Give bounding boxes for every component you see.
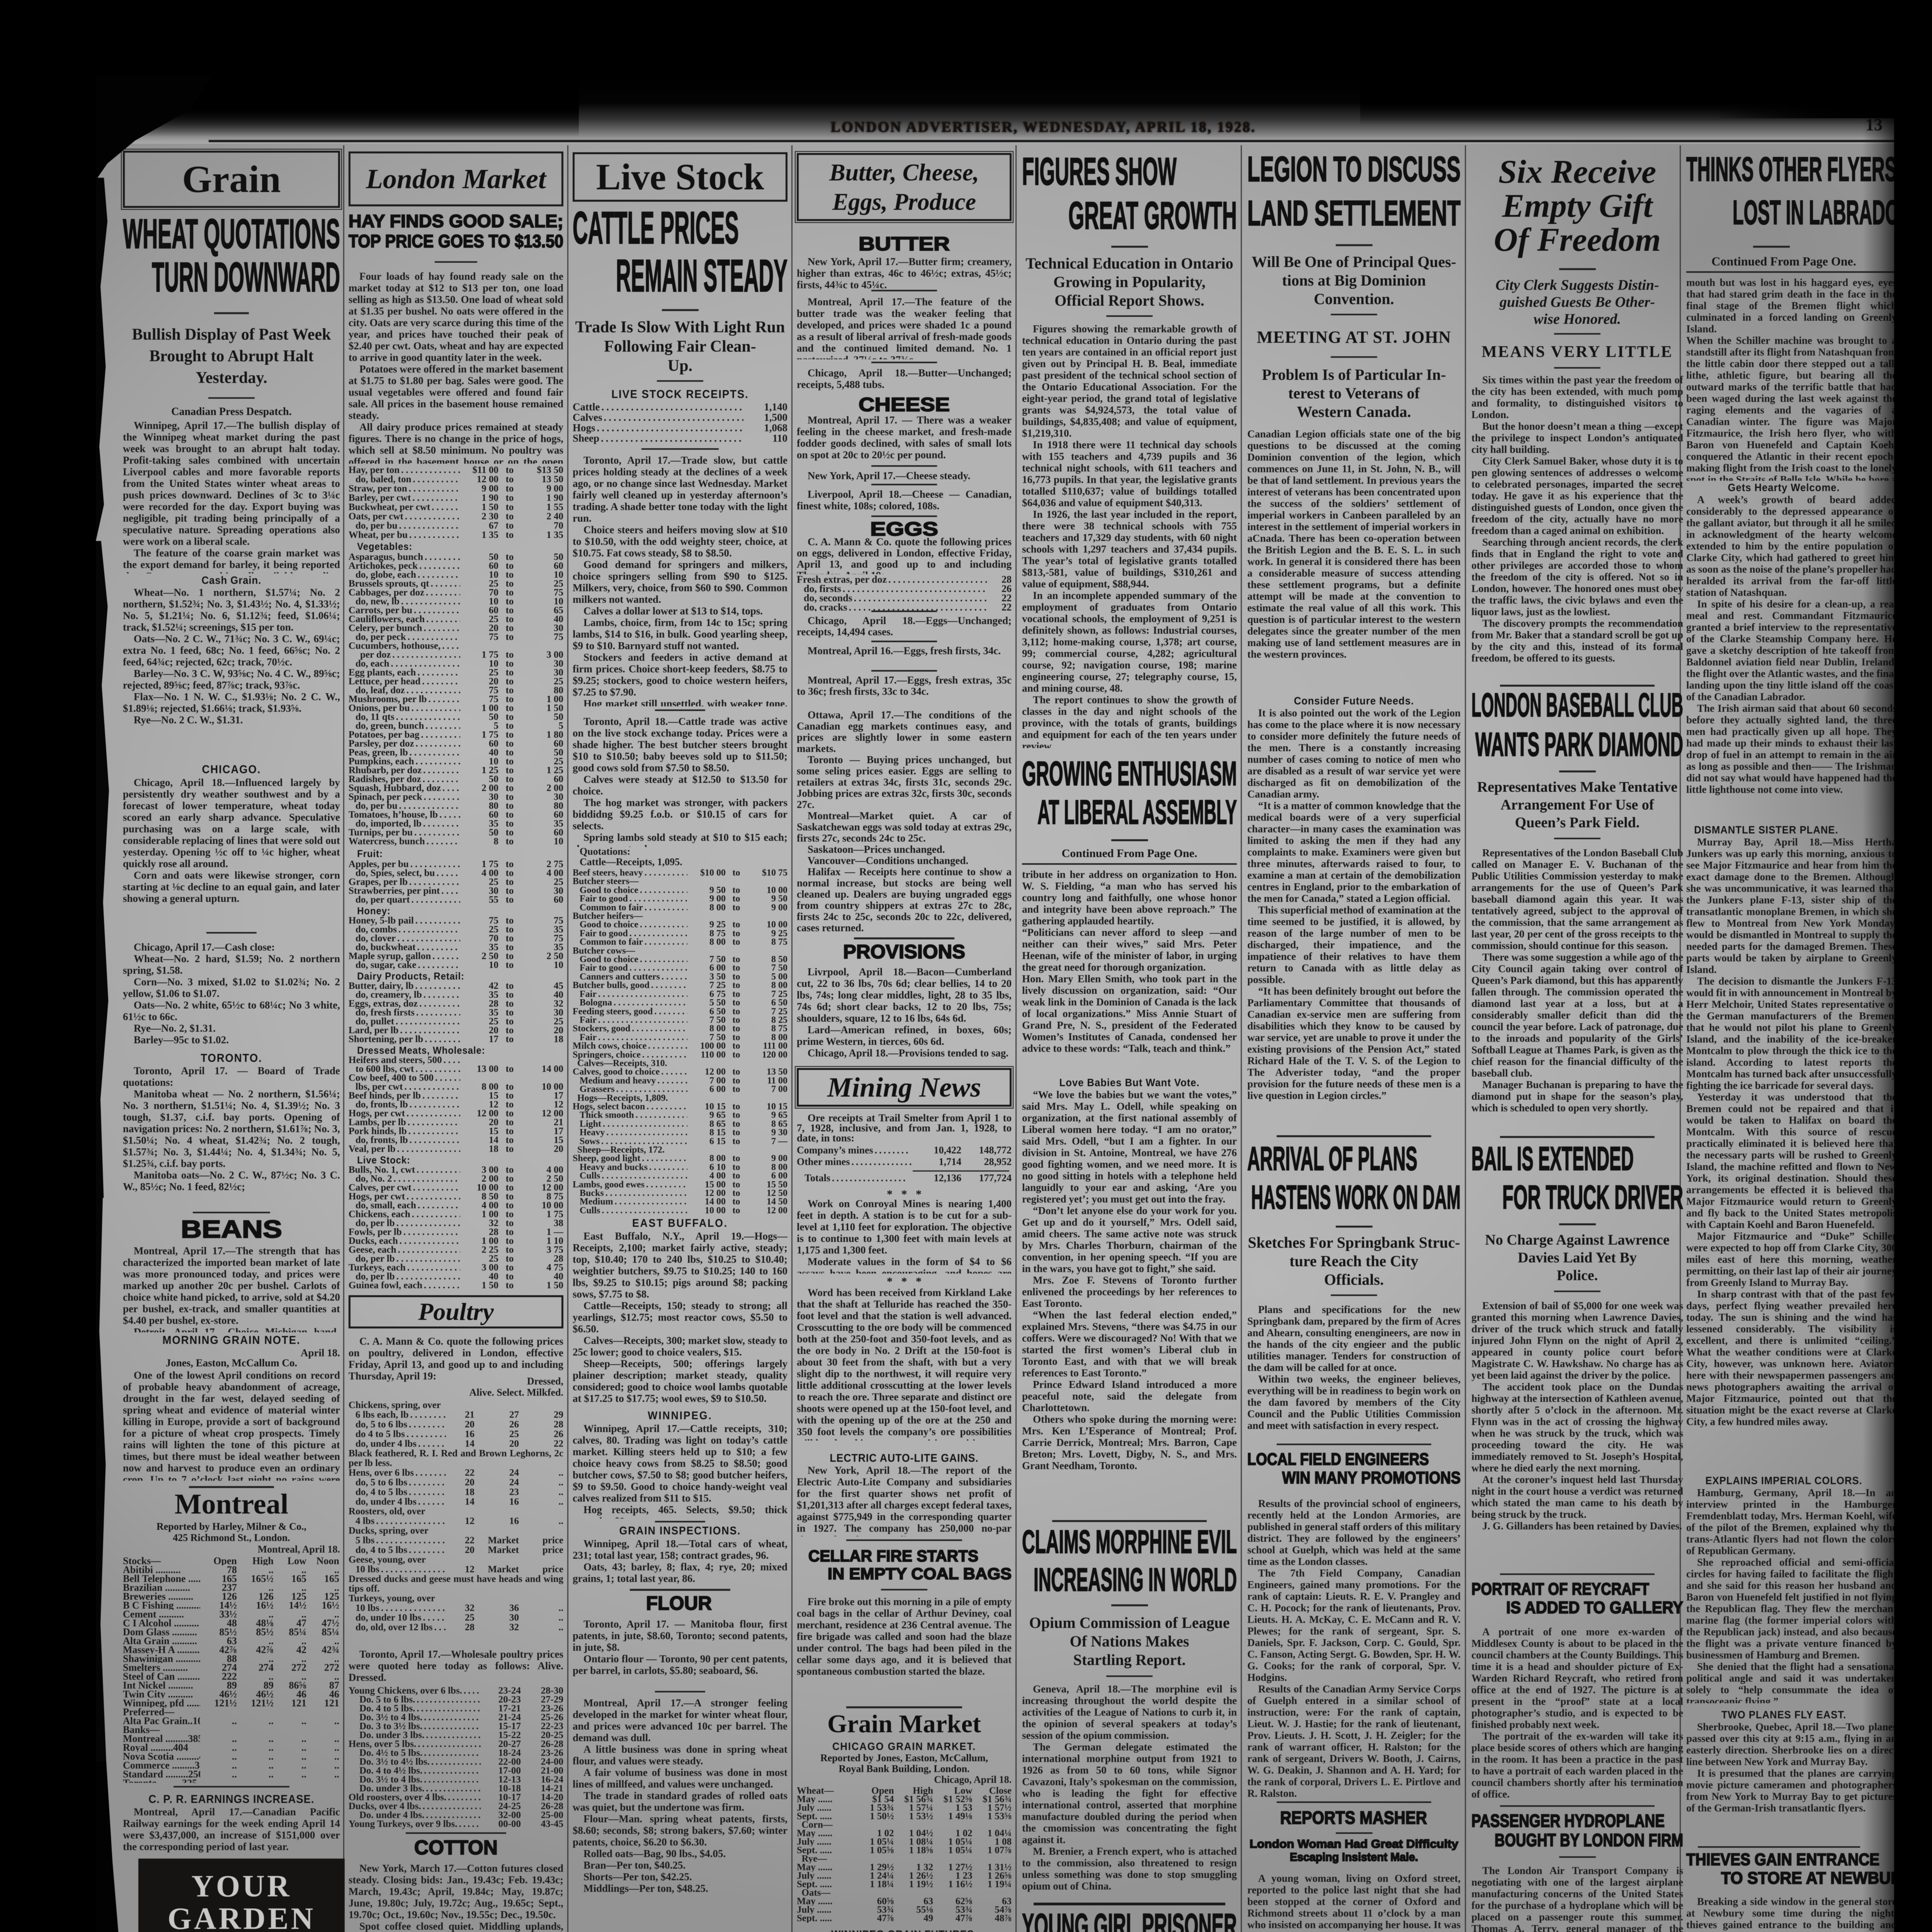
svg-text:CATTLE PRICES: CATTLE PRICES	[573, 202, 739, 253]
svg-text:LONDON BASEBALL CLUB: LONDON BASEBALL CLUB	[1471, 687, 1683, 724]
svg-text:HAY FINDS GOOD SALE;: HAY FINDS GOOD SALE;	[349, 211, 563, 231]
svg-text:CELLAR FIRE STARTS: CELLAR FIRE STARTS	[808, 1547, 978, 1565]
svg-text:CLAIMS MORPHINE EVIL: CLAIMS MORPHINE EVIL	[1022, 1524, 1237, 1560]
svg-text:TURN DOWNWARD: TURN DOWNWARD	[152, 253, 340, 300]
svg-text:REPORTS MASHER: REPORTS MASHER	[1280, 1808, 1427, 1828]
svg-text:COTTON: COTTON	[414, 1837, 498, 1859]
svg-text:Escaping Insistent Male.: Escaping Insistent Male.	[1290, 1851, 1418, 1864]
svg-text:WANTS PARK DIAMOND: WANTS PARK DIAMOND	[1475, 726, 1683, 763]
svg-text:FOR TRUCK DRIVER: FOR TRUCK DRIVER	[1502, 1179, 1683, 1216]
svg-text:ARRIVAL OF PLANS: ARRIVAL OF PLANS	[1247, 1140, 1417, 1177]
svg-text:WHEAT QUOTATIONS: WHEAT QUOTATIONS	[123, 210, 340, 257]
svg-text:IS ADDED TO GALLERY: IS ADDED TO GALLERY	[1506, 1598, 1683, 1617]
svg-text:YOUNG GIRL PRISONER: YOUNG GIRL PRISONER	[1022, 1906, 1237, 1932]
svg-text:PORTRAIT OF REYCRAFT: PORTRAIT OF REYCRAFT	[1471, 1580, 1649, 1599]
svg-text:AT LIBERAL ASSEMBLY: AT LIBERAL ASSEMBLY	[1037, 793, 1237, 831]
svg-text:FIGURES SHOW: FIGURES SHOW	[1022, 150, 1177, 193]
svg-text:London Woman Had Great Difficu: London Woman Had Great Difficulty	[1250, 1838, 1458, 1850]
svg-text:CHEESE: CHEESE	[859, 394, 950, 415]
svg-text:THIEVES GAIN ENTRANCE: THIEVES GAIN ENTRANCE	[1686, 1850, 1879, 1869]
svg-text:WIN MANY PROMOTIONS: WIN MANY PROMOTIONS	[1282, 1468, 1461, 1487]
svg-text:BEANS: BEANS	[181, 1215, 282, 1243]
svg-text:IN EMPTY COAL BAGS: IN EMPTY COAL BAGS	[828, 1565, 1012, 1583]
svg-text:BAIL IS EXTENDED: BAIL IS EXTENDED	[1471, 1140, 1634, 1177]
svg-text:FLOUR: FLOUR	[646, 1592, 712, 1614]
svg-text:TOP PRICE GOES TO $13.50: TOP PRICE GOES TO $13.50	[349, 231, 563, 251]
svg-text:REMAIN STEADY: REMAIN STEADY	[616, 250, 787, 301]
svg-text:INCREASING IN WORLD: INCREASING IN WORLD	[1034, 1561, 1237, 1598]
svg-text:PROVISIONS: PROVISIONS	[843, 941, 965, 963]
svg-text:LEGION TO DISCUSS: LEGION TO DISCUSS	[1247, 150, 1461, 189]
svg-text:LAND SETTLEMENT: LAND SETTLEMENT	[1247, 194, 1461, 233]
svg-text:PASSENGER HYDROPLANE: PASSENGER HYDROPLANE	[1471, 1811, 1665, 1831]
svg-text:BUTTER: BUTTER	[859, 233, 950, 255]
svg-text:LOCAL FIELD ENGINEERS: LOCAL FIELD ENGINEERS	[1247, 1450, 1429, 1469]
svg-text:GROWING ENTHUSIASM: GROWING ENTHUSIASM	[1022, 754, 1237, 793]
svg-text:GREAT GROWTH: GREAT GROWTH	[1068, 194, 1237, 237]
svg-text:BOUGHT BY LONDON FIRM: BOUGHT BY LONDON FIRM	[1495, 1830, 1683, 1850]
svg-text:HASTENS WORK ON DAM: HASTENS WORK ON DAM	[1251, 1179, 1461, 1216]
